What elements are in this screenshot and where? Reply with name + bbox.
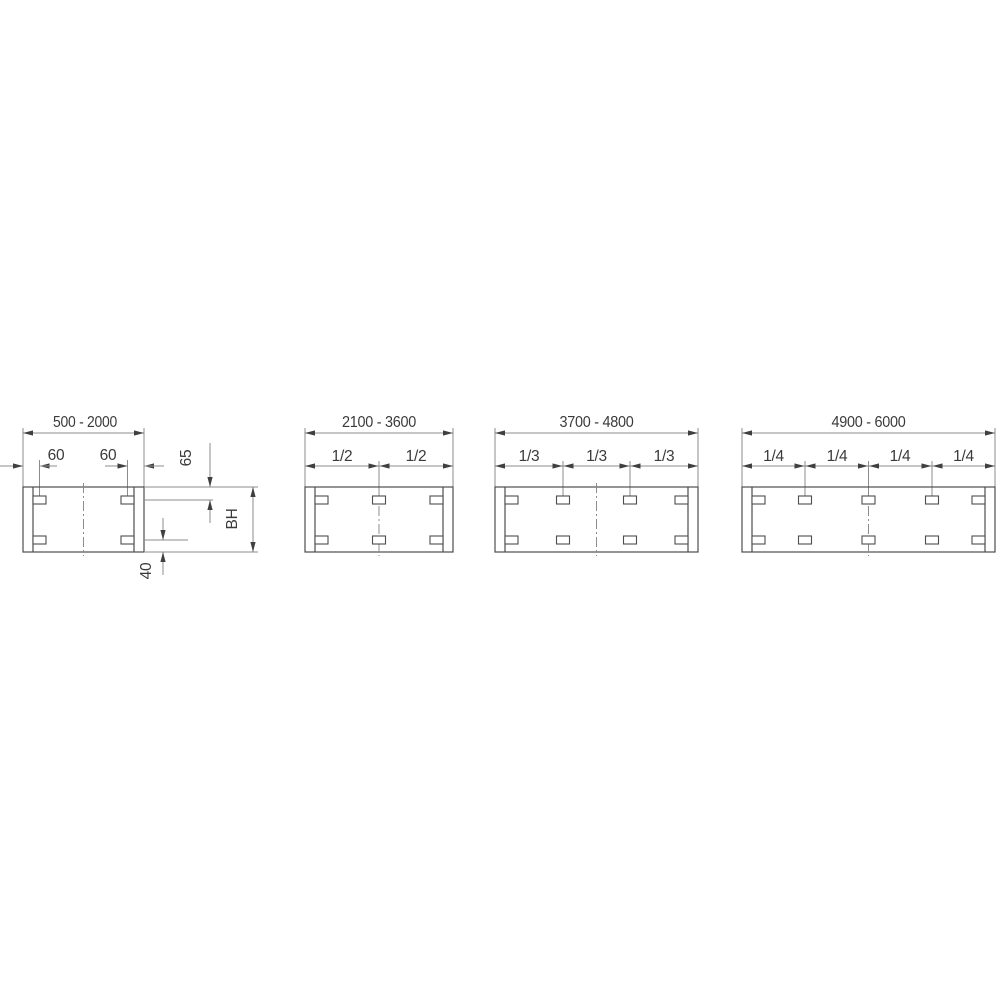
arrowhead — [443, 463, 453, 468]
height-label: BH — [224, 509, 241, 530]
arrowhead — [23, 430, 33, 435]
arrowhead — [985, 463, 995, 468]
arrowhead — [305, 463, 315, 468]
arrowhead — [933, 463, 943, 468]
range-label: 3700 - 4800 — [560, 414, 634, 431]
arrowhead — [443, 430, 453, 435]
hole-offset-label: 40 — [138, 562, 155, 579]
mounting-slot — [33, 496, 46, 504]
panel-1-body — [23, 483, 144, 556]
mounting-slot — [799, 496, 812, 504]
arrowhead — [858, 463, 868, 468]
fraction-label: 1/4 — [890, 448, 911, 465]
range-label: 2100 - 3600 — [342, 414, 416, 431]
arrowhead — [250, 542, 255, 552]
panel-2-subdivision-dimension: 1/2 1/2 — [305, 448, 453, 488]
arrowhead — [207, 477, 212, 487]
arrowhead — [495, 430, 505, 435]
fraction-label: 1/4 — [763, 448, 784, 465]
arrowhead — [869, 463, 879, 468]
arrowhead — [985, 430, 995, 435]
mounting-slot — [799, 536, 812, 544]
mounting-slot — [557, 536, 570, 544]
arrowhead — [795, 463, 805, 468]
panel-4-body — [742, 487, 995, 556]
arrowhead — [380, 463, 390, 468]
fraction-label: 1/3 — [519, 448, 540, 465]
mounting-slot — [624, 536, 637, 544]
width-variants-dimension-drawing: 500 - 2000 60 60 — [0, 0, 1000, 1000]
mounting-slot — [926, 536, 939, 544]
mounting-slot — [505, 496, 518, 504]
mounting-slot — [752, 536, 765, 544]
hole-offset-label: 65 — [178, 450, 195, 467]
arrowhead — [134, 430, 144, 435]
fraction-label: 1/3 — [654, 448, 675, 465]
arrowhead — [118, 463, 128, 468]
panel-1-right-hole-offset-dimension: 60 — [100, 447, 164, 500]
mounting-slot — [675, 536, 688, 544]
arrowhead — [495, 463, 505, 468]
mounting-slot — [862, 536, 875, 544]
arrowhead — [369, 463, 379, 468]
panel-3-group: 3700 - 4800 1/3 1/3 1/3 — [495, 414, 698, 556]
mounting-slot — [972, 496, 985, 504]
panel-1-height-dimension: BH — [144, 487, 258, 552]
mounting-slot — [557, 496, 570, 504]
panel-1-width-range-dimension: 500 - 2000 — [23, 414, 144, 487]
mounting-slot — [505, 536, 518, 544]
mounting-slot — [972, 536, 985, 544]
mounting-slot — [752, 496, 765, 504]
fraction-label: 1/4 — [827, 448, 848, 465]
arrowhead — [207, 500, 212, 510]
mounting-slot — [33, 536, 46, 544]
arrowhead — [553, 463, 563, 468]
arrowhead — [305, 430, 315, 435]
mounting-slot — [430, 496, 443, 504]
mounting-slot — [315, 536, 328, 544]
mounting-slot — [926, 496, 939, 504]
arrowhead — [806, 463, 816, 468]
panel-3-body — [495, 483, 698, 556]
arrowhead — [922, 463, 932, 468]
hole-offset-label: 60 — [100, 447, 117, 464]
arrowhead — [160, 530, 165, 540]
mounting-slot — [675, 496, 688, 504]
range-label: 4900 - 6000 — [832, 414, 906, 431]
arrowhead — [688, 430, 698, 435]
fraction-label: 1/4 — [953, 448, 974, 465]
arrowhead — [620, 463, 630, 468]
panel-1-bottom-hole-offset-dimension: 40 — [138, 518, 188, 579]
mounting-slot — [862, 496, 875, 504]
fraction-label: 1/2 — [332, 448, 353, 465]
hole-offset-label: 60 — [48, 447, 65, 464]
mounting-slot — [430, 536, 443, 544]
mounting-slot — [121, 536, 134, 544]
arrowhead — [564, 463, 574, 468]
panel-2-group: 2100 - 3600 1/2 1/2 — [305, 414, 453, 556]
arrowhead — [688, 463, 698, 468]
mounting-slot — [624, 496, 637, 504]
arrowhead — [13, 463, 23, 468]
mounting-slot — [315, 496, 328, 504]
mounting-slot — [373, 496, 386, 504]
range-label: 500 - 2000 — [53, 414, 117, 431]
fraction-label: 1/2 — [406, 448, 427, 465]
arrowhead — [160, 552, 165, 562]
fraction-label: 1/3 — [586, 448, 607, 465]
arrowhead — [250, 487, 255, 497]
mounting-slot — [121, 496, 134, 504]
panel-4-group: 4900 - 6000 1/4 1/4 1/4 1/4 — [742, 414, 995, 556]
panel-2-body — [305, 487, 453, 556]
arrowhead — [742, 463, 752, 468]
technical-drawing-canvas: 500 - 2000 60 60 — [0, 0, 1000, 1000]
arrowhead — [631, 463, 641, 468]
mounting-slot — [373, 536, 386, 544]
arrowhead — [742, 430, 752, 435]
panel-1-group: 500 - 2000 60 60 — [0, 414, 258, 579]
